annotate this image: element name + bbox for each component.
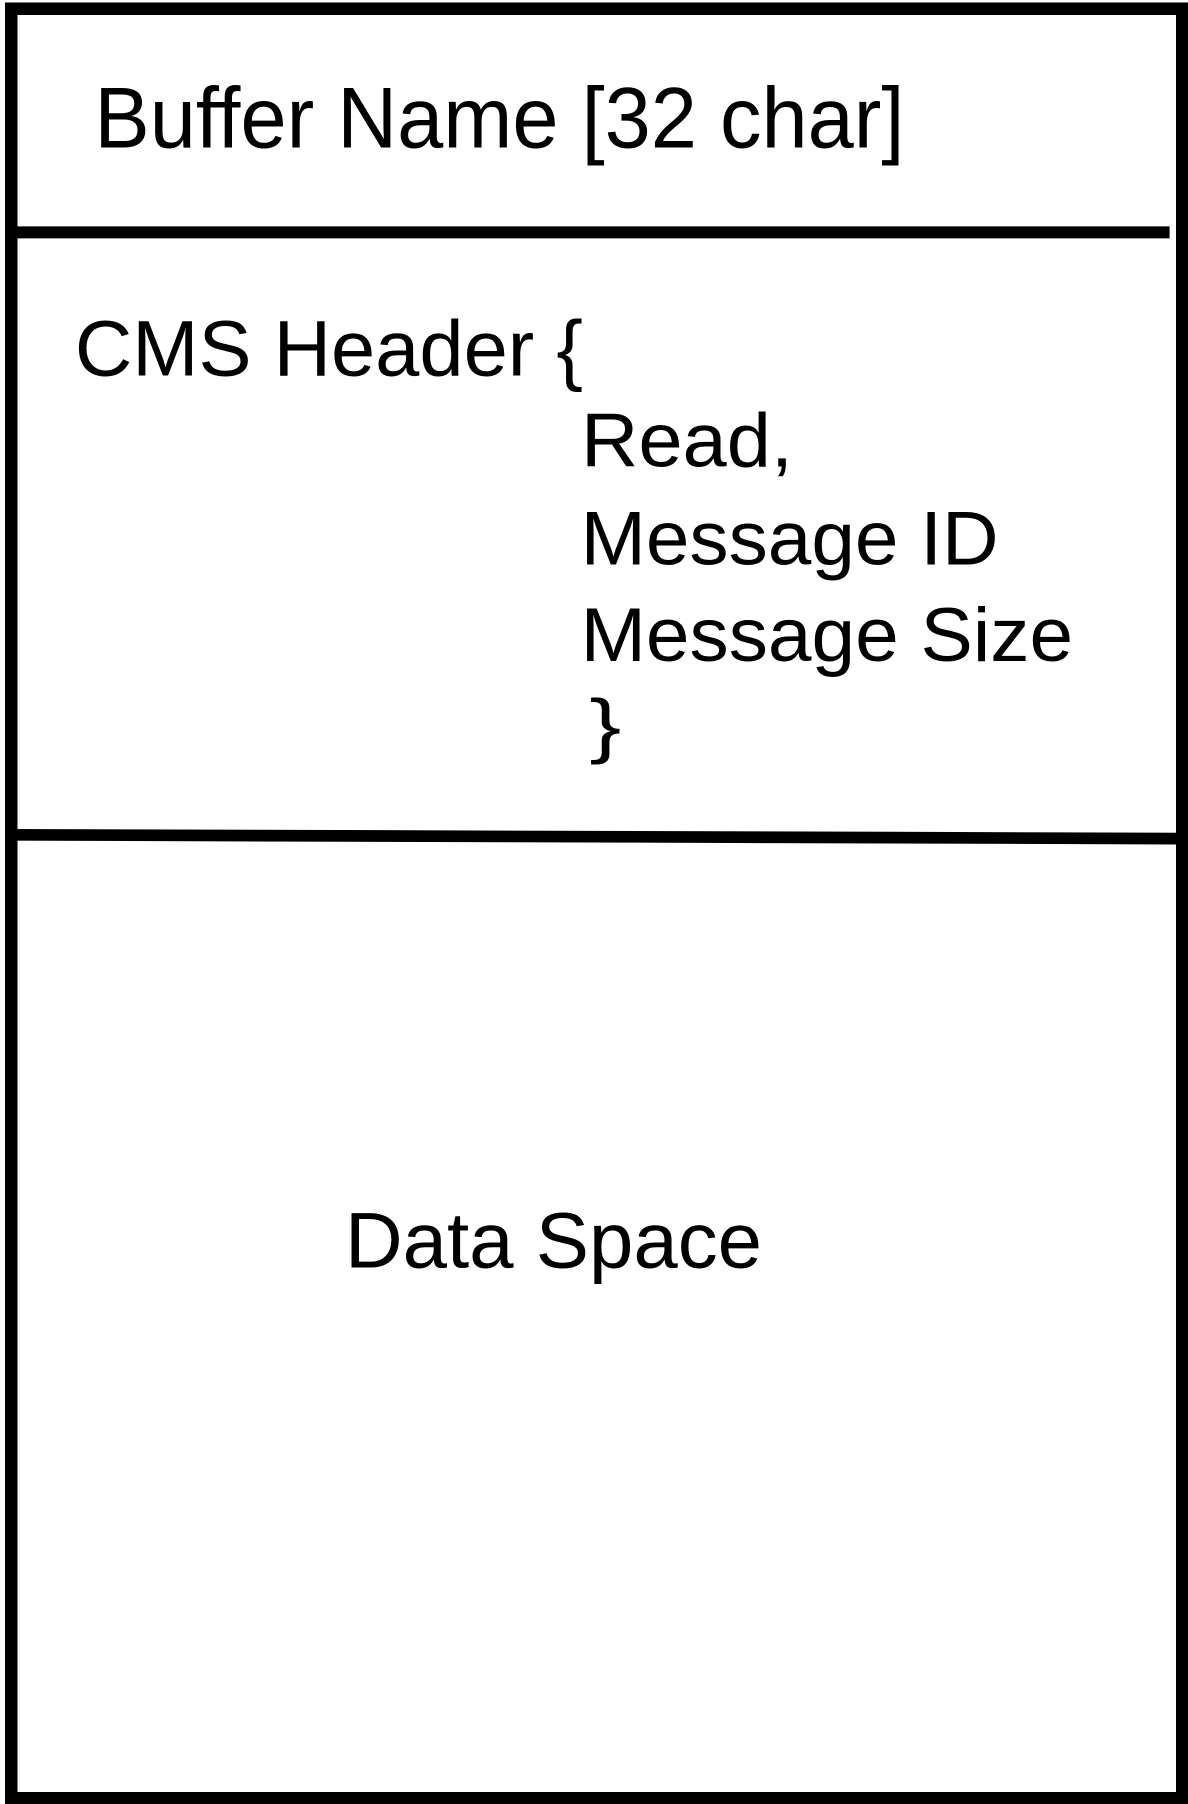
svg-text:Data Space: Data Space	[345, 1197, 762, 1285]
svg-text:}: }	[590, 687, 622, 766]
svg-text:CMS Header {: CMS Header {	[75, 304, 583, 392]
svg-text:Message Size: Message Size	[581, 593, 1074, 678]
svg-text:Buffer Name [32 char]: Buffer Name [32 char]	[94, 70, 904, 166]
svg-text:Read,: Read,	[581, 399, 793, 484]
svg-text:Message ID: Message ID	[581, 497, 999, 582]
